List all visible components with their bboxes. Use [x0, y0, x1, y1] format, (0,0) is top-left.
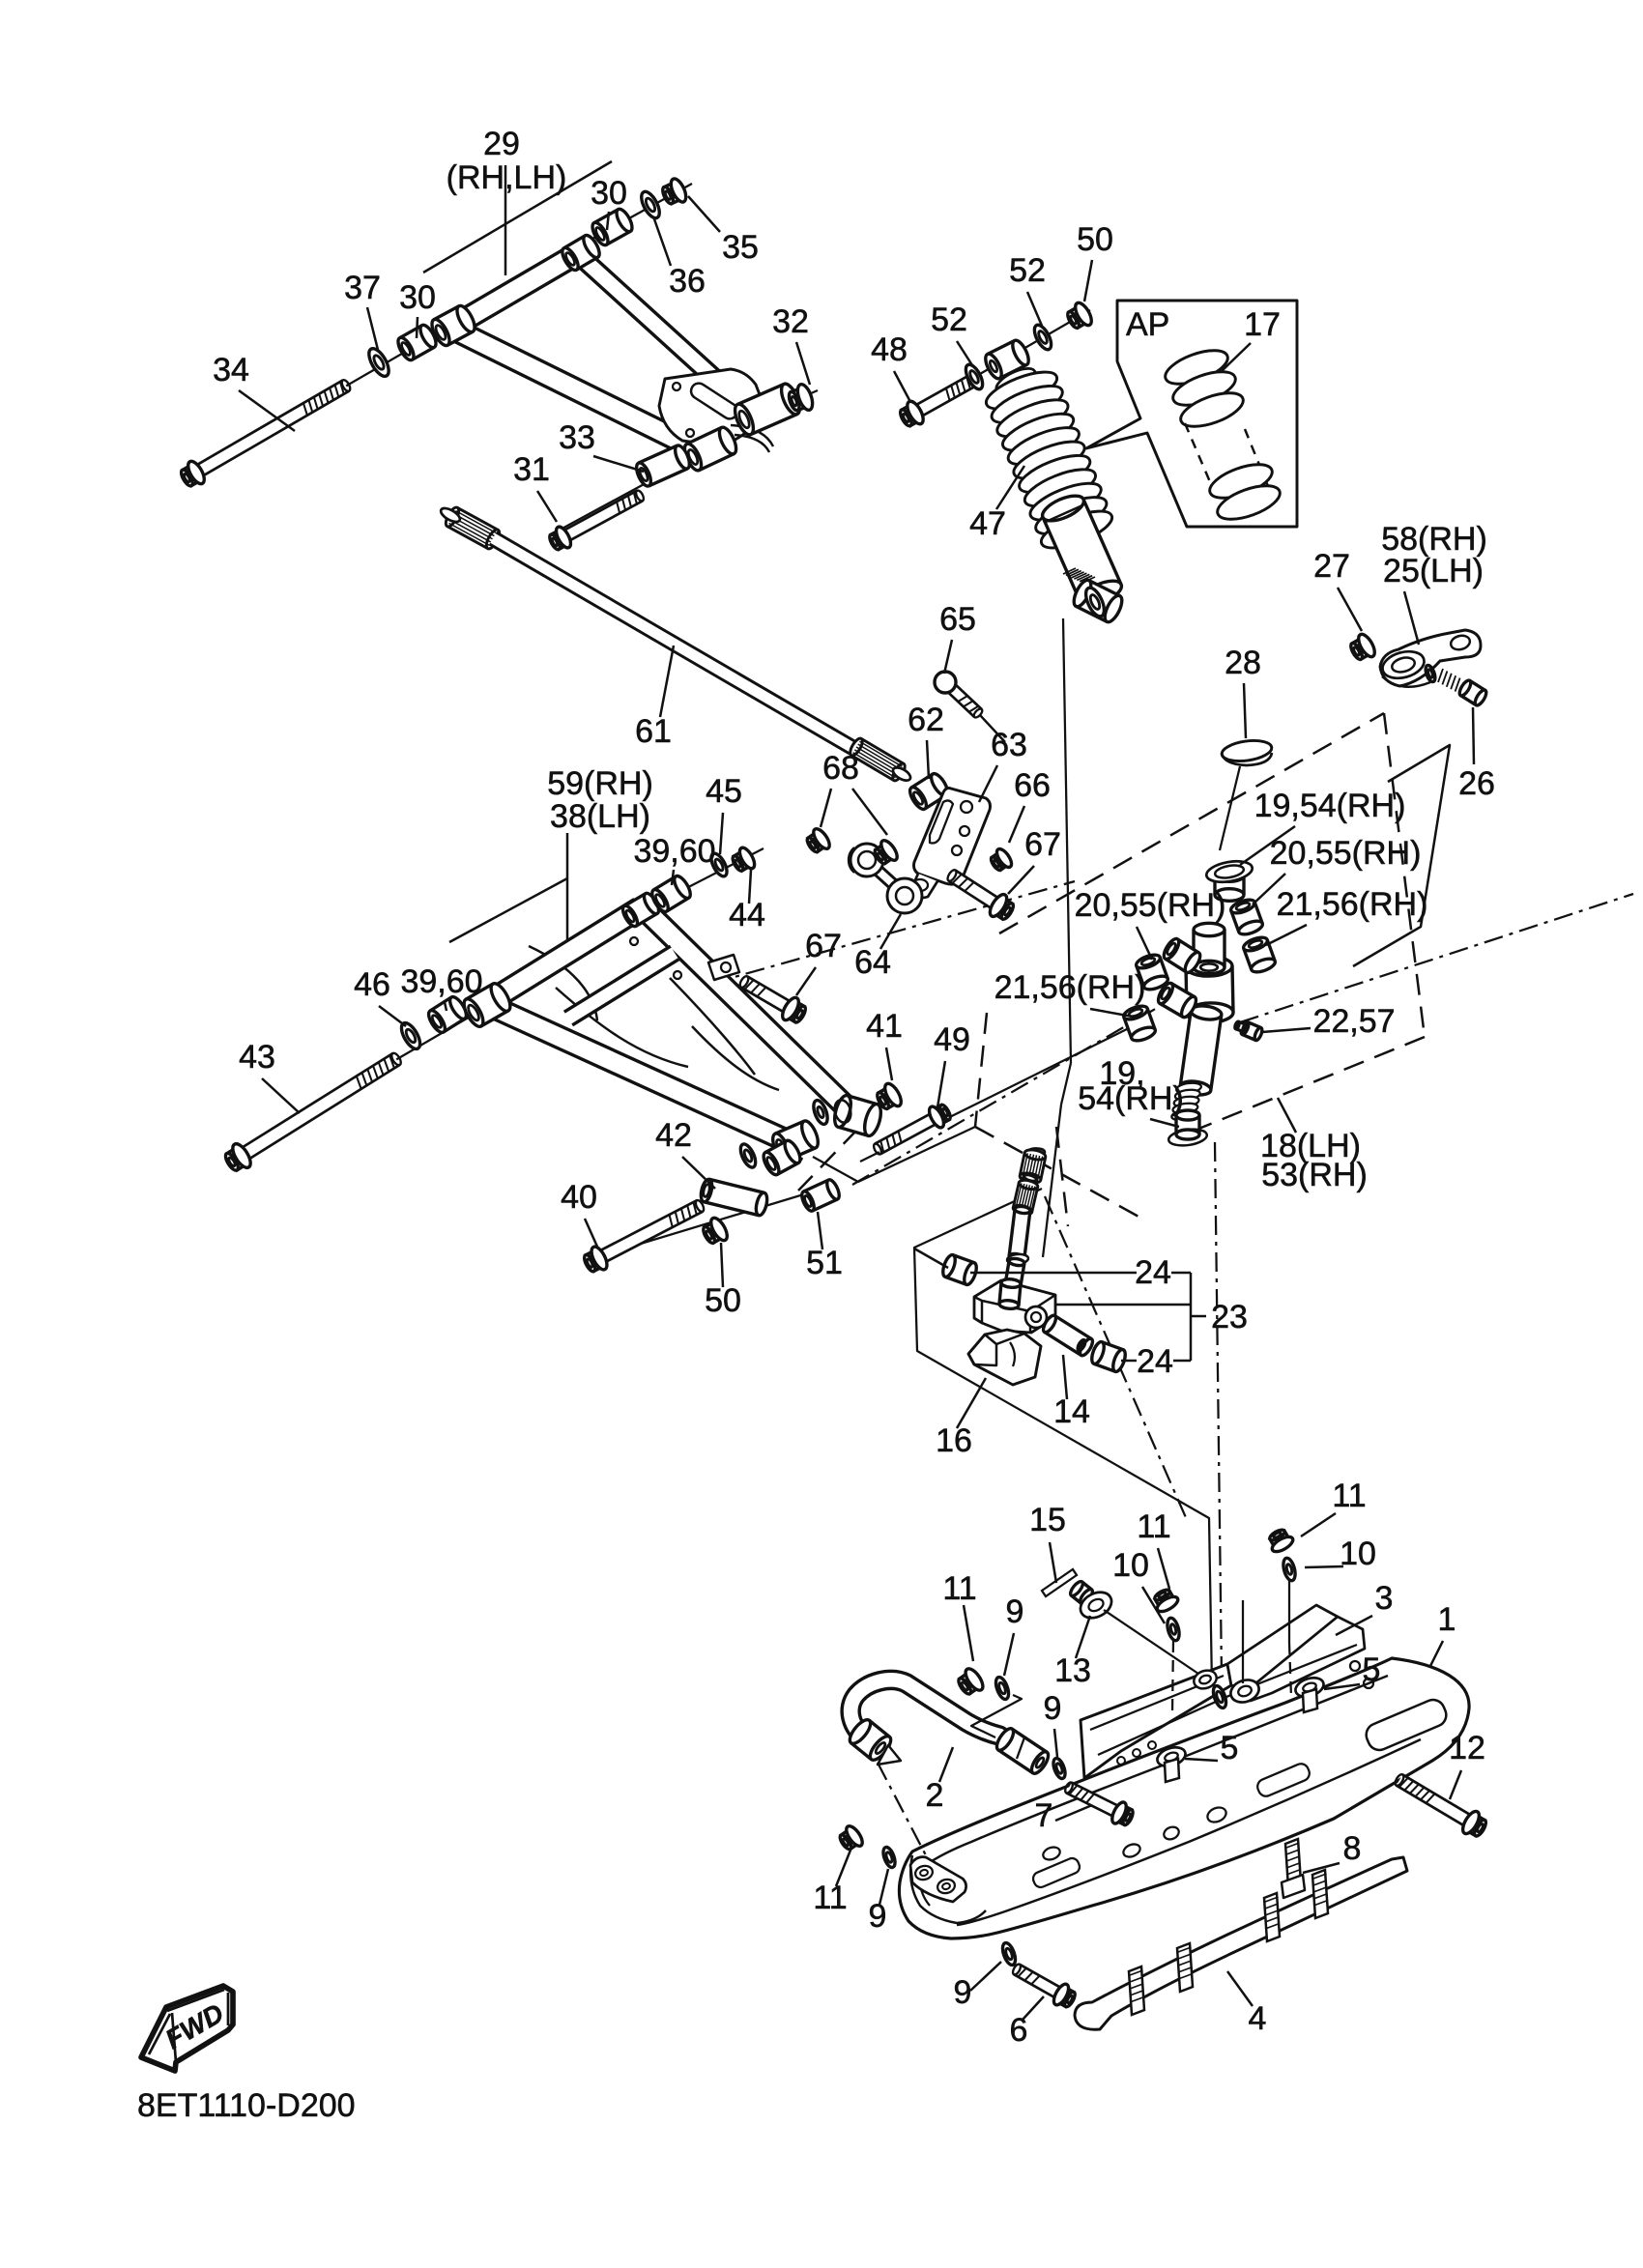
svg-text:20,55(RH): 20,55(RH) — [1075, 887, 1226, 924]
svg-text:22,57: 22,57 — [1312, 1003, 1395, 1040]
svg-text:25(LH): 25(LH) — [1383, 553, 1484, 589]
svg-text:21,56(RH): 21,56(RH) — [994, 969, 1146, 1006]
svg-text:65: 65 — [939, 601, 976, 638]
svg-text:50: 50 — [705, 1282, 741, 1319]
svg-text:35: 35 — [722, 229, 759, 266]
svg-text:49: 49 — [934, 1021, 970, 1058]
svg-text:3: 3 — [1375, 1580, 1394, 1617]
svg-text:24: 24 — [1135, 1254, 1171, 1291]
svg-text:45: 45 — [706, 773, 742, 810]
svg-text:50: 50 — [1077, 221, 1113, 258]
svg-text:9: 9 — [954, 1974, 972, 2011]
svg-text:5: 5 — [1221, 1730, 1239, 1766]
svg-text:36: 36 — [669, 263, 706, 300]
svg-text:11: 11 — [813, 1880, 847, 1916]
svg-text:38(LH): 38(LH) — [550, 798, 650, 835]
svg-text:11: 11 — [942, 1570, 976, 1607]
svg-text:2: 2 — [926, 1777, 944, 1814]
svg-text:20,55(RH): 20,55(RH) — [1270, 835, 1422, 872]
svg-text:44: 44 — [729, 897, 765, 933]
svg-text:15: 15 — [1029, 1502, 1066, 1538]
svg-text:33: 33 — [559, 419, 595, 456]
svg-text:66: 66 — [1014, 767, 1051, 804]
svg-text:8: 8 — [1343, 1830, 1362, 1867]
svg-text:47: 47 — [969, 505, 1006, 542]
svg-text:12: 12 — [1449, 1730, 1485, 1766]
svg-text:1: 1 — [1438, 1601, 1456, 1638]
svg-text:AP: AP — [1126, 306, 1169, 343]
svg-text:23: 23 — [1211, 1299, 1248, 1335]
svg-text:10: 10 — [1340, 1536, 1376, 1572]
svg-text:40: 40 — [561, 1179, 597, 1216]
svg-text:39,60: 39,60 — [633, 833, 715, 870]
svg-text:8ET1110-D200: 8ET1110-D200 — [137, 2087, 356, 2124]
svg-text:17: 17 — [1244, 306, 1281, 343]
svg-text:37: 37 — [344, 270, 381, 306]
svg-text:27: 27 — [1313, 548, 1350, 585]
svg-text:67: 67 — [805, 928, 842, 964]
svg-text:34: 34 — [213, 352, 249, 388]
svg-text:14: 14 — [1053, 1393, 1090, 1430]
svg-text:46: 46 — [354, 966, 390, 1003]
svg-text:48: 48 — [871, 331, 908, 368]
svg-text:9: 9 — [1044, 1690, 1062, 1727]
svg-text:13: 13 — [1054, 1652, 1091, 1689]
svg-text:52: 52 — [1009, 252, 1046, 289]
svg-text:53(RH): 53(RH) — [1261, 1157, 1368, 1193]
svg-text:11: 11 — [1332, 1478, 1366, 1514]
svg-text:68: 68 — [822, 750, 859, 787]
svg-text:54(RH): 54(RH) — [1078, 1080, 1184, 1117]
svg-text:41: 41 — [866, 1008, 903, 1045]
svg-text:30: 30 — [591, 175, 627, 212]
svg-text:9: 9 — [1006, 1593, 1024, 1630]
svg-text:11: 11 — [1137, 1508, 1170, 1545]
svg-text:39,60: 39,60 — [400, 963, 482, 1000]
svg-text:(RH,LH): (RH,LH) — [447, 159, 567, 196]
svg-text:62: 62 — [908, 702, 944, 738]
svg-text:43: 43 — [239, 1039, 275, 1076]
svg-text:24: 24 — [1137, 1343, 1173, 1380]
svg-text:21,56(RH): 21,56(RH) — [1277, 886, 1428, 923]
svg-text:5: 5 — [1363, 1651, 1381, 1688]
svg-text:67: 67 — [1024, 826, 1061, 863]
svg-text:29: 29 — [483, 126, 520, 162]
svg-text:26: 26 — [1458, 765, 1495, 802]
svg-text:32: 32 — [772, 303, 809, 340]
svg-text:51: 51 — [806, 1245, 843, 1281]
svg-text:59(RH): 59(RH) — [547, 765, 653, 802]
svg-text:30: 30 — [399, 279, 436, 316]
svg-text:19,54(RH): 19,54(RH) — [1254, 788, 1406, 824]
svg-text:7: 7 — [1035, 1797, 1053, 1834]
svg-text:10: 10 — [1112, 1547, 1149, 1584]
svg-text:52: 52 — [931, 301, 967, 338]
svg-text:28: 28 — [1225, 645, 1261, 681]
svg-text:16: 16 — [936, 1422, 972, 1459]
svg-text:9: 9 — [869, 1898, 887, 1935]
svg-text:31: 31 — [513, 451, 550, 488]
svg-text:42: 42 — [655, 1117, 692, 1154]
svg-text:64: 64 — [854, 944, 891, 981]
svg-text:61: 61 — [635, 713, 672, 750]
